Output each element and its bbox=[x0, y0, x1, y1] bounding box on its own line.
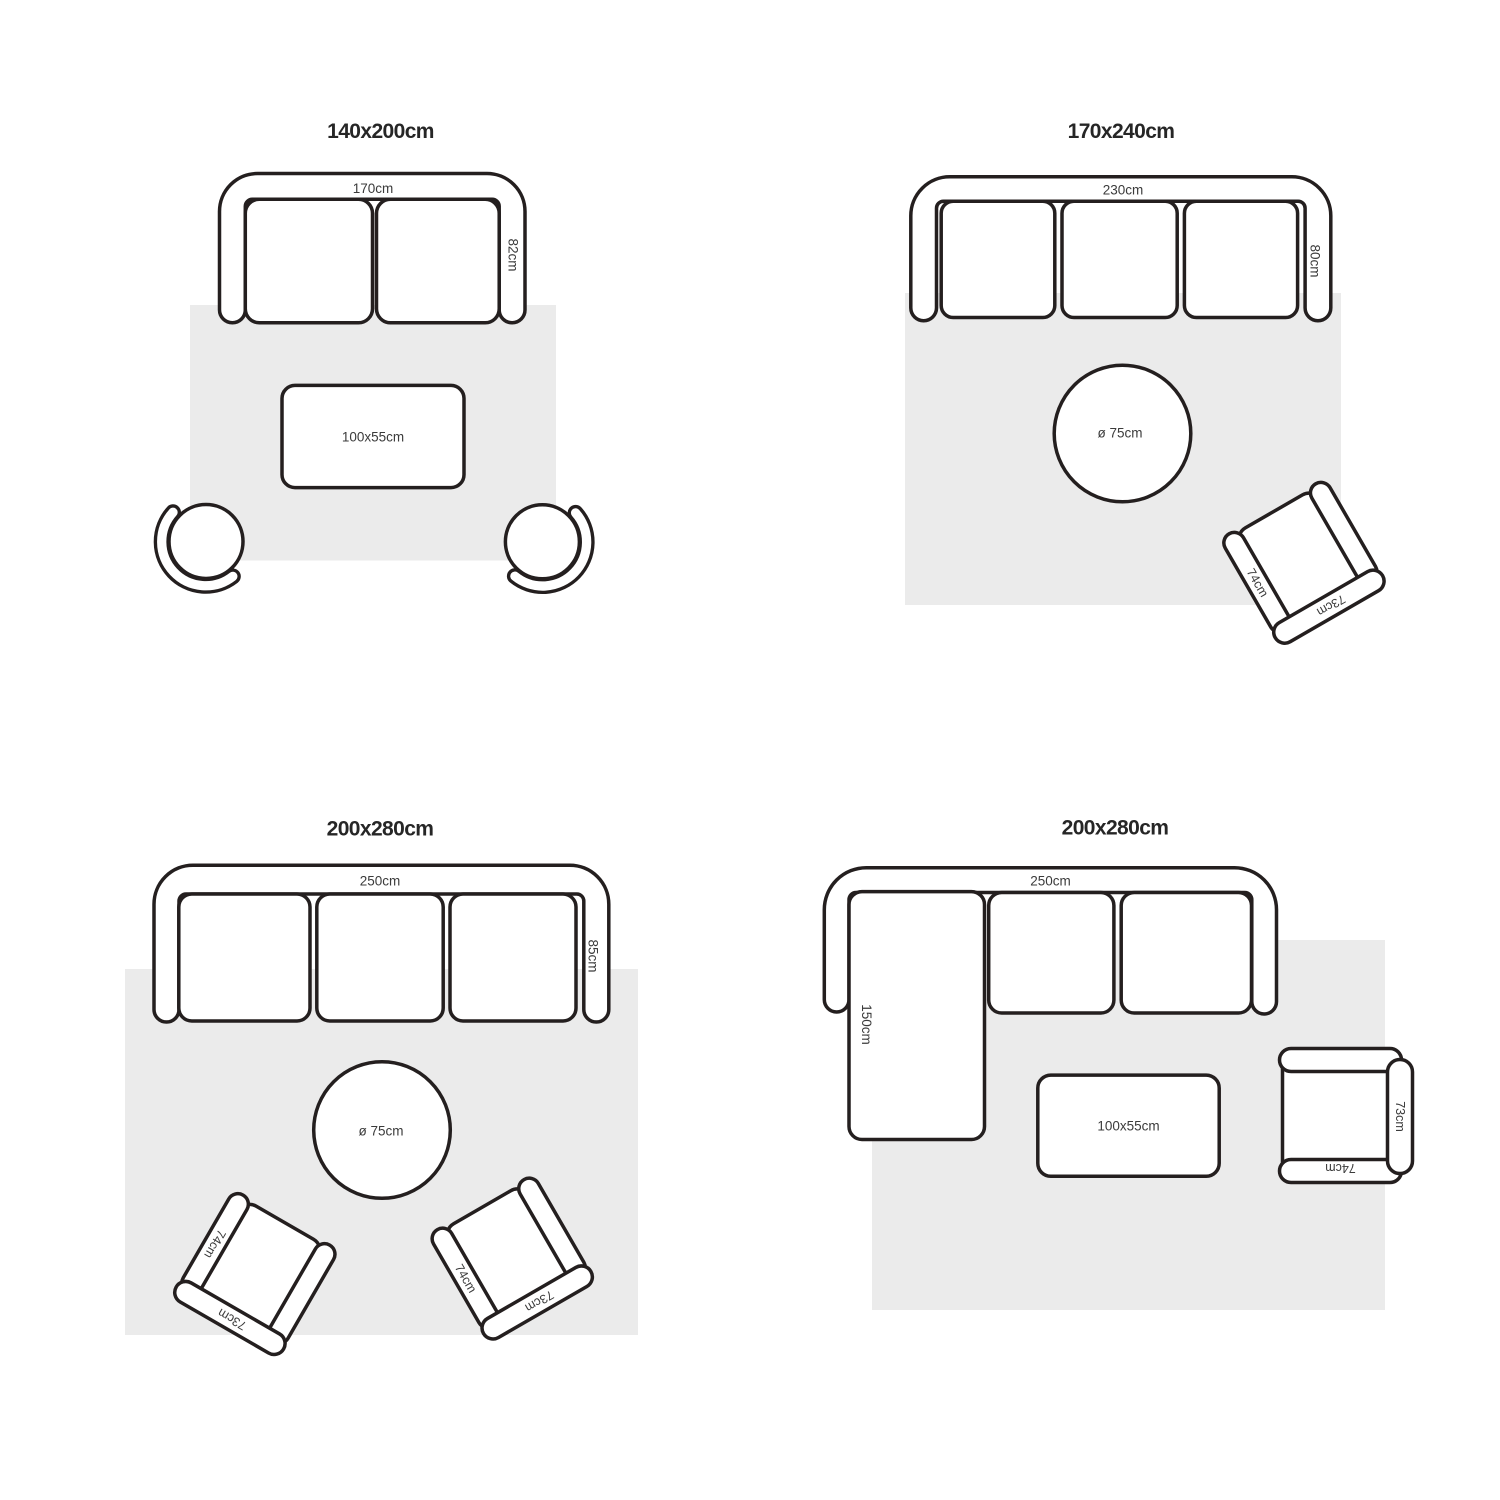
svg-text:85cm: 85cm bbox=[586, 939, 601, 972]
svg-text:150cm: 150cm bbox=[859, 1004, 874, 1045]
svg-text:140x200cm: 140x200cm bbox=[327, 120, 434, 143]
svg-text:170cm: 170cm bbox=[353, 181, 394, 196]
svg-text:ø 75cm: ø 75cm bbox=[1097, 426, 1142, 441]
svg-text:250cm: 250cm bbox=[1030, 874, 1071, 889]
svg-text:74cm: 74cm bbox=[1325, 1161, 1356, 1175]
svg-text:100x55cm: 100x55cm bbox=[1097, 1119, 1159, 1134]
svg-text:73cm: 73cm bbox=[1393, 1101, 1407, 1132]
svg-text:82cm: 82cm bbox=[506, 238, 521, 271]
svg-text:ø 75cm: ø 75cm bbox=[358, 1124, 403, 1139]
svg-text:200x280cm: 200x280cm bbox=[1062, 817, 1169, 840]
svg-text:230cm: 230cm bbox=[1103, 183, 1144, 198]
svg-text:200x280cm: 200x280cm bbox=[327, 818, 434, 841]
svg-text:170x240cm: 170x240cm bbox=[1068, 120, 1175, 143]
svg-text:100x55cm: 100x55cm bbox=[342, 430, 404, 445]
svg-text:80cm: 80cm bbox=[1308, 244, 1323, 277]
svg-text:250cm: 250cm bbox=[360, 874, 401, 889]
